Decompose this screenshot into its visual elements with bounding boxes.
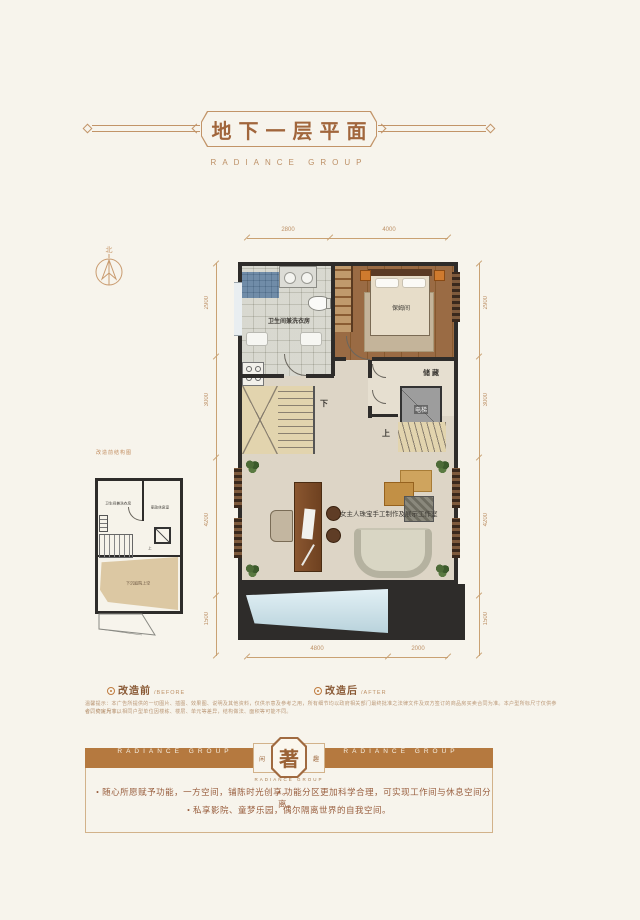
feature-bullet-1: 随心所愿赋予功能，一方空间，铺陈时光创享。 <box>96 786 291 798</box>
window-bath <box>234 282 242 336</box>
dim-right-4: 1500 <box>483 612 489 625</box>
desk-chair <box>270 510 293 542</box>
feature-box: 随心所愿赋予功能，一方空间，铺陈时光创享。 功能分区更加科学合理，可实现工作间与… <box>85 768 493 833</box>
header-diamond-right-icon <box>486 124 496 134</box>
stair-up-label: 上 <box>382 428 390 439</box>
inset-void-area: 下沉庭院上空 <box>100 557 178 610</box>
header-rule-left <box>92 125 200 132</box>
inset-stairs <box>99 534 133 558</box>
label-after: 改造后 /AFTER <box>314 682 387 697</box>
page-header: 地下一层平面 RADIANCE GROUP <box>0 110 578 170</box>
dim-right-2: 3000 <box>483 393 489 406</box>
feature-bullet-3: 私享影院、童梦乐园，偶尔隔离世界的自我空间。 <box>86 804 492 816</box>
window-bedroom <box>452 272 460 322</box>
couch <box>354 528 432 578</box>
bed: 保姆间 <box>370 270 430 336</box>
dim-right-1: 2900 <box>483 296 489 309</box>
compass-north-label: 北 <box>106 246 113 254</box>
dim-right-3: 4200 <box>483 513 489 526</box>
seal-right-char: 趣 <box>313 754 319 763</box>
stair-down <box>242 386 315 454</box>
bottom-module: RADIANCE GROUP RADIANCE GROUP 闲 趣 著 RADI… <box>85 742 493 837</box>
before-dot-icon <box>107 687 115 695</box>
window-studio-right-1 <box>452 468 460 508</box>
inset-stair-up-label: 上 <box>148 546 152 551</box>
banner-brand-left: RADIANCE GROUP <box>99 742 251 762</box>
floorplan-before: 卫生间兼洗衣房 家政休息室 上 下沉庭院上空 <box>95 478 183 614</box>
bay-window-glass <box>246 589 388 633</box>
stool-1 <box>326 506 341 521</box>
dim-left-4: 1500 <box>204 612 210 625</box>
dim-top-2: 4000 <box>371 227 407 233</box>
window-studio-right-2 <box>452 518 460 558</box>
inset-closet <box>99 515 108 532</box>
room-label-storage: 储藏 <box>412 368 452 378</box>
banner-brand-right: RADIANCE GROUP <box>325 742 477 762</box>
stool-2 <box>326 528 341 543</box>
room-label-nanny: 保姆间 <box>377 303 425 312</box>
inset-elevator <box>154 527 171 544</box>
seal-left-char: 闲 <box>259 754 265 763</box>
desk <box>294 482 322 572</box>
compass-icon: 北 <box>92 244 126 295</box>
inset-label-void: 下沉庭院上空 <box>126 581 150 586</box>
inset-caption: 改造前结构图 <box>96 449 132 456</box>
inset-exterior-steps <box>97 613 159 638</box>
vanity <box>279 266 317 288</box>
label-before: 改造前 /BEFORE <box>107 682 185 697</box>
floorplan-after: 卫生间兼洗衣房 保姆间 储藏 电梯 下 <box>238 262 458 584</box>
wardrobe <box>334 266 353 332</box>
inset-label-rest: 家政休息室 <box>146 505 174 510</box>
room-label-bath: 卫生间兼洗衣房 <box>250 316 328 325</box>
dim-bottom-2: 2000 <box>400 646 436 652</box>
dim-bottom-1: 4800 <box>299 646 335 652</box>
window-studio-left-1 <box>234 468 242 508</box>
title-frame: 地下一层平面 <box>201 111 377 147</box>
brochure-page: 地下一层平面 RADIANCE GROUP 北 2800 4000 4800 2… <box>0 0 640 920</box>
washing-area <box>242 272 279 298</box>
dim-left-3: 4200 <box>204 513 210 526</box>
room-label-elevator: 电梯 <box>414 405 428 414</box>
room-label-studio: 女主人珠宝手工制作及展示工作室 <box>340 508 446 518</box>
disclaimer-line-2: 合同约定为准。相同户型单位因楼栋、楼层、单元等差异，结构做法、面积等可能不同。 <box>85 709 557 717</box>
dim-top-1: 2800 <box>270 227 306 233</box>
dim-left-2: 3000 <box>204 393 210 406</box>
inset-door-arc <box>128 507 142 521</box>
stair-down-label: 下 <box>320 398 328 409</box>
inset-label-bath: 卫生间兼洗衣房 <box>101 501 135 506</box>
stair-up <box>398 422 446 452</box>
dim-left-1: 2900 <box>204 296 210 309</box>
bay-window <box>238 584 465 640</box>
window-studio-left-2 <box>234 518 242 558</box>
page-title: 地下一层平面 <box>205 115 374 144</box>
header-brand-text: RADIANCE GROUP <box>189 158 389 167</box>
after-dot-icon <box>314 687 322 695</box>
header-diamond-left-icon <box>83 124 93 134</box>
header-rule-right <box>378 125 486 132</box>
